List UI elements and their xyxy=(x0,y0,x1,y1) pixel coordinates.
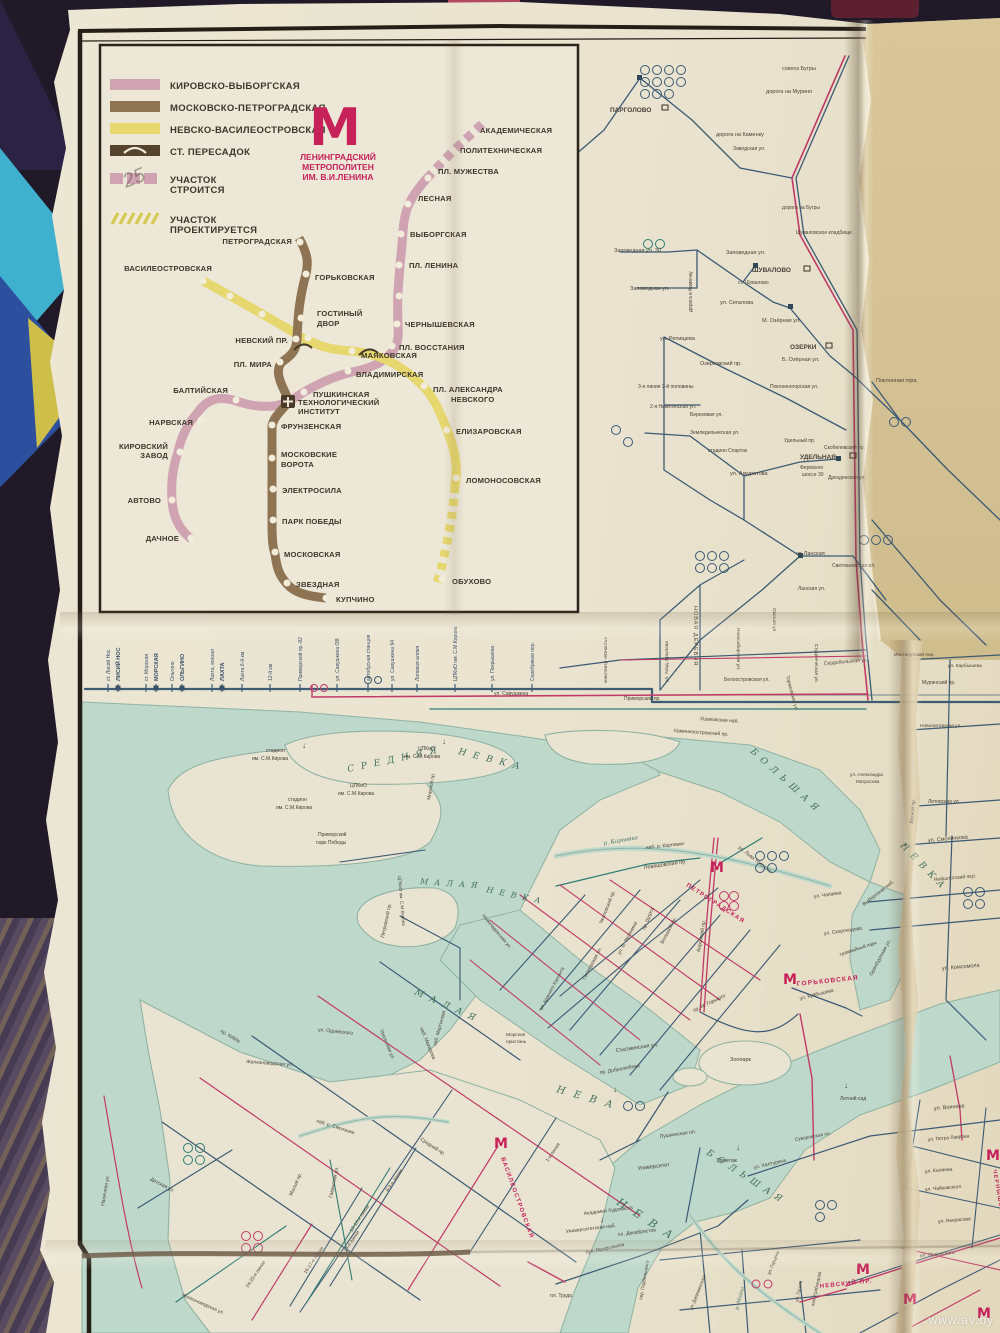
watermark: www.av.by xyxy=(929,1313,994,1327)
photo-of-leningrad-transit-map: АКАДЕМИЧЕСКАЯПОЛИТЕХНИЧЕСКАЯПЛ. МУЖЕСТВА… xyxy=(0,0,1000,1333)
map-paper xyxy=(0,0,1000,1333)
background-object xyxy=(831,0,919,18)
